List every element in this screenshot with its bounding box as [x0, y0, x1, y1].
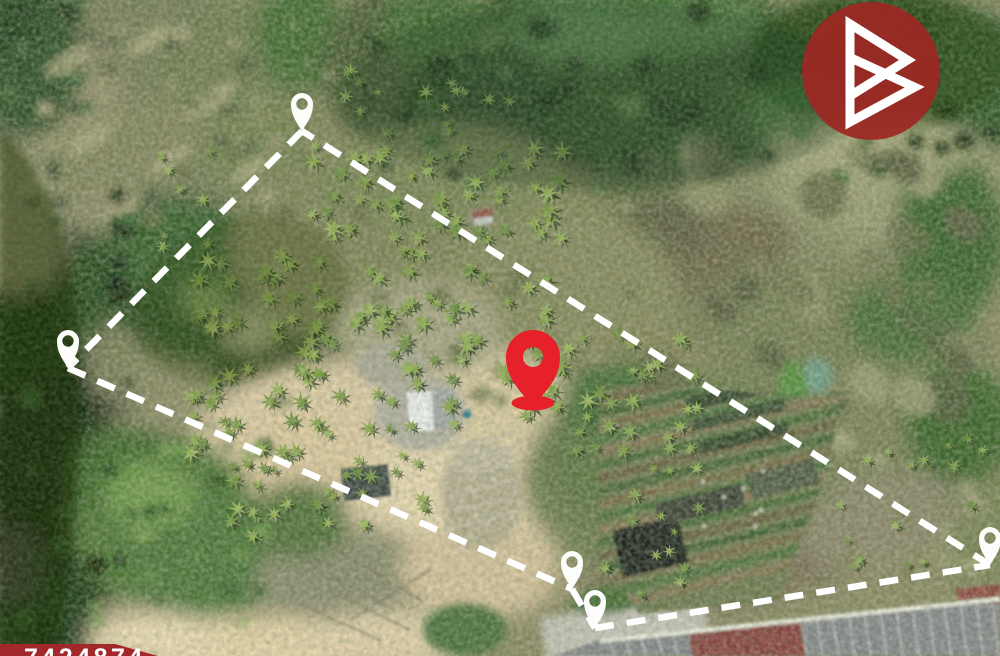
svg-text:7424874: 7424874	[24, 644, 146, 656]
